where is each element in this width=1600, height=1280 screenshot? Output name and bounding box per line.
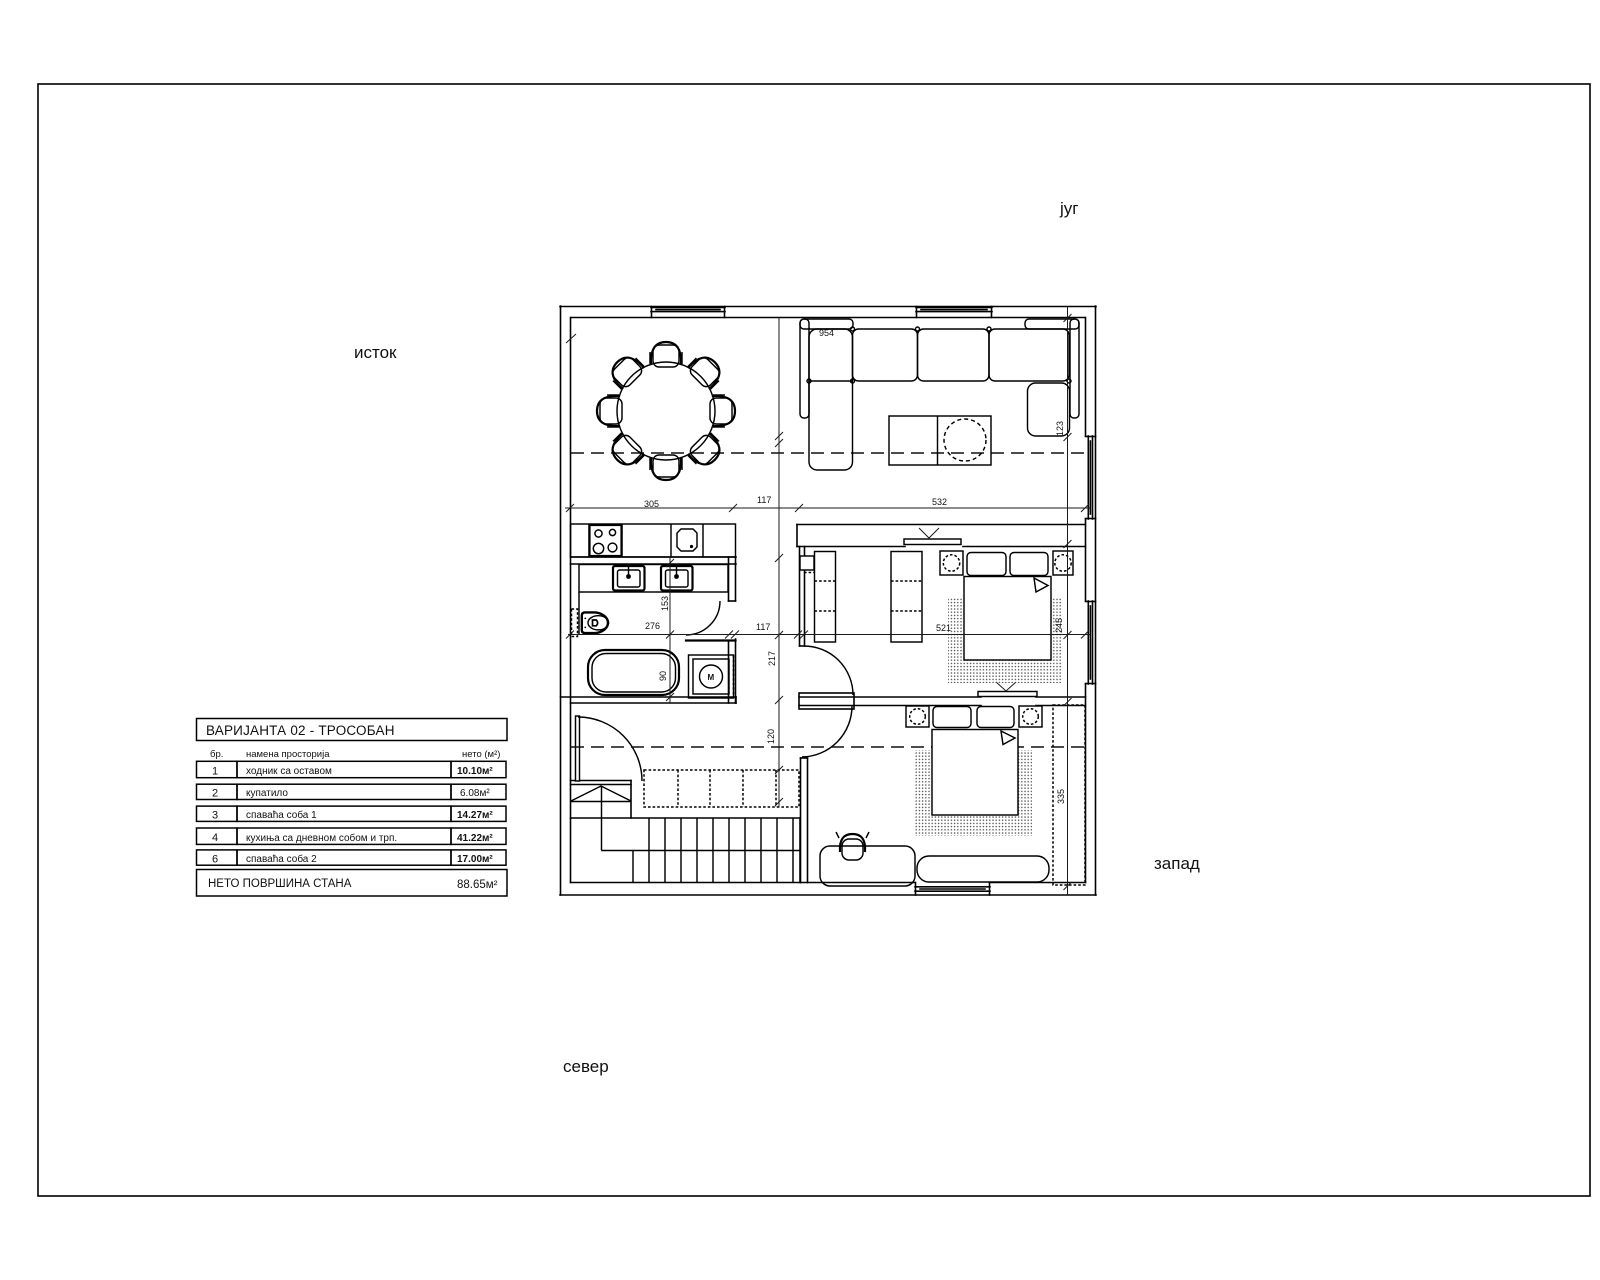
svg-text:исток: исток xyxy=(354,343,397,362)
svg-text:41.22м²: 41.22м² xyxy=(457,833,493,844)
svg-text:2: 2 xyxy=(212,788,218,800)
svg-text:нето (м²): нето (м²) xyxy=(462,749,500,760)
svg-text:532: 532 xyxy=(932,497,947,507)
svg-text:153: 153 xyxy=(660,596,670,611)
svg-text:90: 90 xyxy=(658,671,668,681)
svg-text:954: 954 xyxy=(819,328,834,338)
svg-text:6.08м²: 6.08м² xyxy=(460,788,490,799)
svg-text:3: 3 xyxy=(212,810,218,822)
svg-text:335: 335 xyxy=(1056,789,1066,804)
svg-text:ВАРИЈАНТА 02 - ТРОСОБАН: ВАРИЈАНТА 02 - ТРОСОБАН xyxy=(206,723,395,738)
svg-text:M: M xyxy=(708,673,715,682)
svg-text:север: север xyxy=(563,1057,609,1076)
svg-text:6: 6 xyxy=(212,853,218,865)
svg-text:југ: југ xyxy=(1059,199,1078,218)
svg-text:521: 521 xyxy=(936,623,951,633)
svg-text:117: 117 xyxy=(757,495,771,505)
svg-text:запад: запад xyxy=(1154,854,1200,873)
svg-text:276: 276 xyxy=(645,621,660,631)
svg-text:бр.: бр. xyxy=(210,749,223,760)
svg-text:намена просторија: намена просторија xyxy=(246,749,330,760)
svg-text:17.00м²: 17.00м² xyxy=(457,854,493,865)
svg-text:305: 305 xyxy=(644,499,659,509)
svg-text:123: 123 xyxy=(1055,421,1065,436)
svg-text:245: 245 xyxy=(1054,618,1064,633)
svg-text:НЕТО ПОВРШИНА СТАНА: НЕТО ПОВРШИНА СТАНА xyxy=(208,878,352,890)
svg-text:купатило: купатило xyxy=(246,788,288,799)
svg-text:кухиња са дневном собом и трп.: кухиња са дневном собом и трп. xyxy=(246,832,397,844)
svg-text:117: 117 xyxy=(756,622,770,632)
svg-text:14.27м²: 14.27м² xyxy=(457,810,493,821)
svg-text:10.10м²: 10.10м² xyxy=(457,766,493,777)
svg-text:1: 1 xyxy=(212,766,218,778)
svg-text:спаваћа соба 2: спаваћа соба 2 xyxy=(246,853,317,865)
svg-text:спаваћа соба 1: спаваћа соба 1 xyxy=(246,809,317,821)
svg-text:ходник са оставом: ходник са оставом xyxy=(246,766,332,777)
svg-text:4: 4 xyxy=(212,832,218,844)
svg-text:120: 120 xyxy=(766,729,776,744)
svg-text:88.65м²: 88.65м² xyxy=(457,879,498,891)
svg-text:217: 217 xyxy=(767,651,777,666)
